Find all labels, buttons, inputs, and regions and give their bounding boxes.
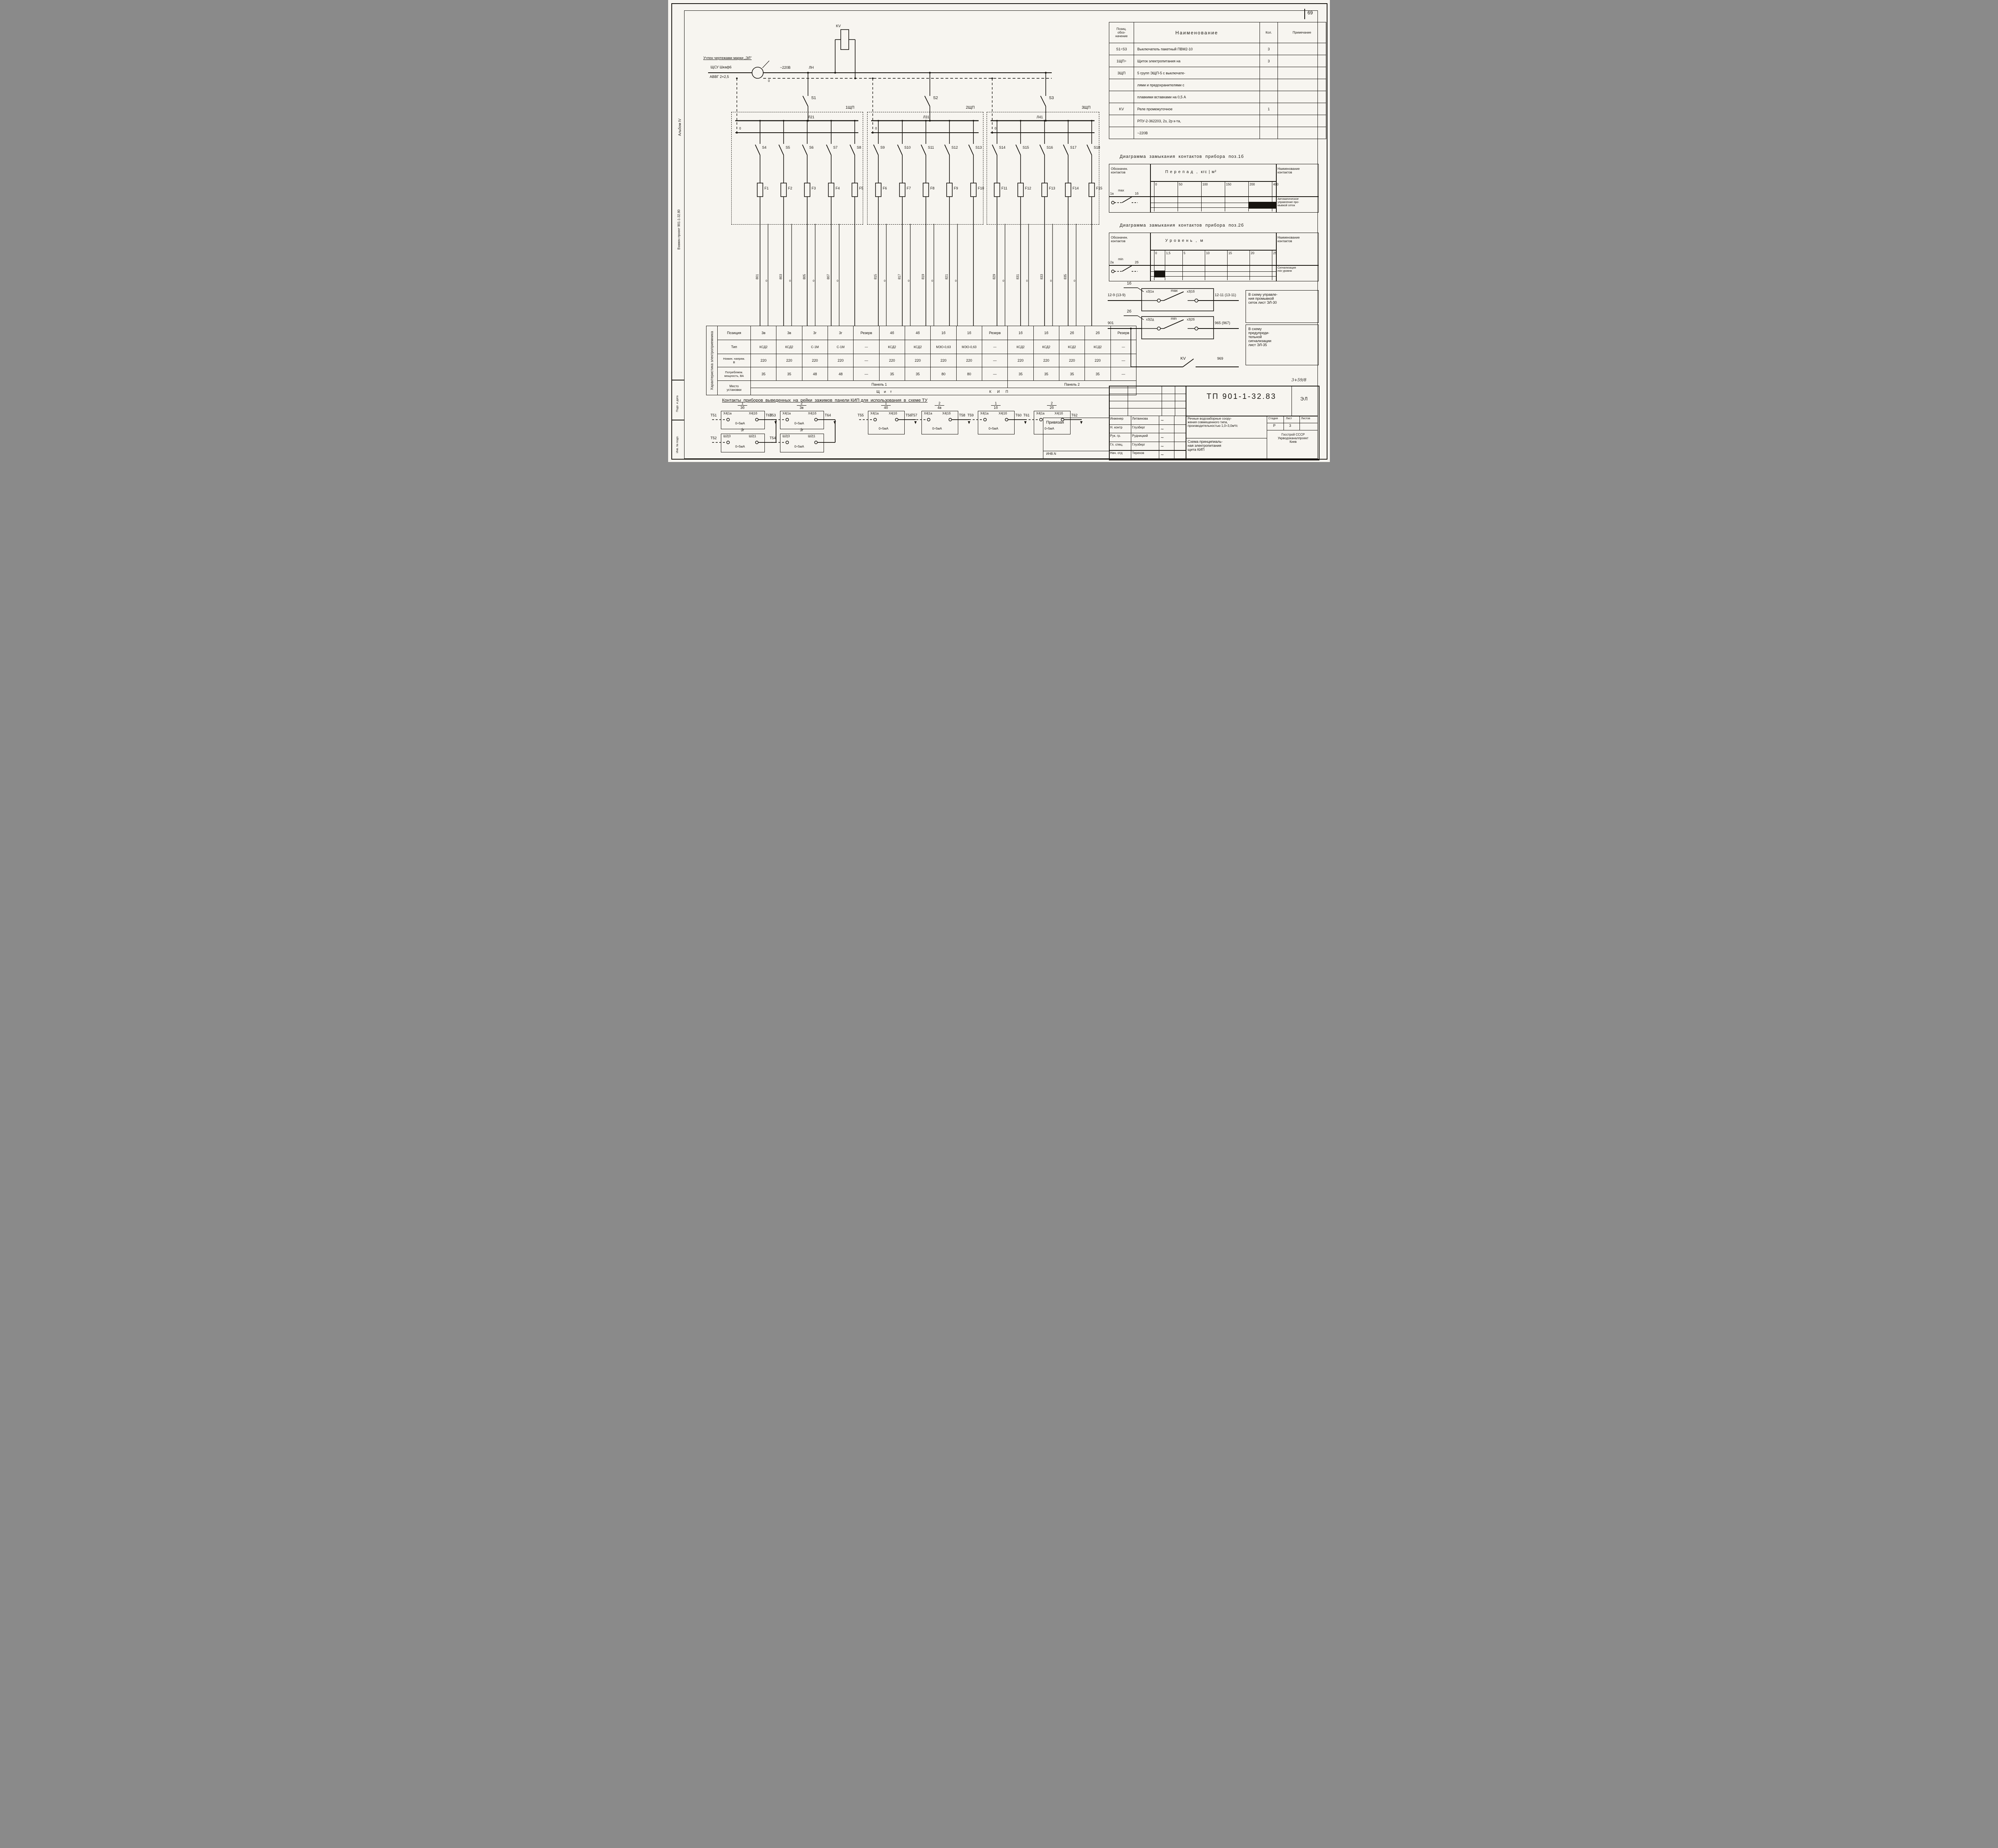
sig-col-line — [1159, 416, 1159, 459]
terminal-number: Т54 — [770, 436, 776, 440]
terminal-range: 0÷5мА — [879, 427, 888, 431]
drawing-sheet: 69 Альбом IV Взамен проект 901-1-32.80 П… — [668, 0, 1330, 462]
sig-role: Рук. гр. — [1110, 434, 1121, 438]
tb-divider — [1267, 416, 1267, 459]
diagram2-title: Диаграмма замыкания контактов прибора по… — [1120, 223, 1244, 228]
comp-col-header: Кол. — [1260, 22, 1278, 43]
load-voltage: 220 — [751, 354, 776, 367]
load-power: 35 — [751, 367, 776, 381]
branch-switch-label: S7 — [833, 145, 838, 149]
branch-switch-label: S12 — [951, 145, 958, 149]
switch-blade — [925, 96, 930, 106]
load-position: 1б — [931, 326, 956, 340]
scale-line — [1150, 250, 1276, 251]
terminal-group-pos: 3в — [797, 406, 806, 410]
junction-dot — [834, 72, 836, 74]
terminal-contact: Ш2|1 — [749, 435, 756, 438]
comp-ref: S1÷S3 — [1109, 43, 1134, 55]
terminal-group-pos: 4б — [881, 406, 891, 410]
terminal-number: Т58 — [959, 413, 965, 417]
branch-switch-label: S6 — [809, 145, 814, 149]
load-position: Резерв — [854, 326, 879, 340]
comp-note — [1278, 43, 1326, 55]
contact-purpose: Автоматическое управление про- мывкой се… — [1278, 198, 1299, 207]
terminal-number: Т57 — [911, 413, 917, 417]
marker-circle — [752, 67, 763, 78]
load-type: КСД2 — [776, 340, 802, 354]
zero-wire-label: 0 — [1050, 280, 1052, 283]
zero-wire-label: 0 — [931, 280, 933, 283]
tick-label: 20 — [1251, 252, 1254, 255]
sig-row-line — [1109, 459, 1186, 459]
comp-note — [1278, 91, 1326, 103]
fuse-label: F11 — [1001, 186, 1007, 190]
circuit-pos-label: 1б — [1127, 281, 1131, 286]
terminal-number: Т64 — [825, 413, 831, 417]
terminal-group-num: 1 — [991, 401, 1001, 406]
scale-tick — [1182, 251, 1183, 280]
load-power: 35 — [1008, 367, 1033, 381]
comp-ref: 1ЩП÷ — [1109, 55, 1134, 67]
tb-line — [1267, 430, 1318, 430]
tb-divider — [1292, 386, 1292, 416]
drawing-title: Схема принципиаль- ная электропитания щи… — [1188, 440, 1266, 452]
wire-number: 817 — [898, 269, 902, 285]
tick-label: 0 — [1155, 183, 1157, 187]
contact-track — [1150, 276, 1276, 277]
terminal-contact: Х4|1а — [870, 412, 879, 416]
diagram-axis-label: П е р е п а д , кгс | м² — [1165, 170, 1216, 174]
tick-label: 5 — [1184, 252, 1185, 255]
sig-role: Нач. отд — [1110, 452, 1122, 455]
load-location: Щ и тК И П — [751, 388, 1136, 395]
zero-wire-label: 0 — [955, 280, 957, 283]
panel-box-1ЩП — [731, 112, 863, 225]
scale-tick — [1201, 182, 1202, 211]
comp-note — [1278, 115, 1326, 127]
wire-number: 815 — [874, 269, 878, 285]
col-divider — [1150, 164, 1151, 212]
col-divider — [1276, 164, 1277, 212]
revision-grid-line — [1109, 408, 1186, 408]
terminal-contact: Х4|1а — [1036, 412, 1045, 416]
wire-number: 829 — [993, 269, 997, 285]
stage-header: Лист — [1286, 417, 1292, 420]
terminal-contact: Х4|1а — [924, 412, 932, 416]
load-power: — — [1110, 367, 1136, 381]
comp-qty — [1260, 127, 1278, 139]
main-switch-label: S3 — [1049, 96, 1054, 100]
comp-name: Щиток электропитания на — [1134, 55, 1260, 67]
tick-label: 100 — [1202, 183, 1208, 187]
signature-squiggle: ~ — [1160, 427, 1164, 432]
zero-label: 0 — [995, 127, 996, 131]
load-voltage: 220 — [905, 354, 930, 367]
terminal-group-num: 2 — [935, 401, 944, 406]
kv-wire-number: 969 — [1217, 356, 1223, 360]
row-divider — [1109, 265, 1318, 266]
tick-label: 25 — [1273, 252, 1277, 255]
relay-coil — [841, 30, 849, 50]
comp-name: РПУ-2-362203, 2з, 2р к-та, — [1134, 115, 1260, 127]
load-power: 35 — [1033, 367, 1059, 381]
note-box-el35: В схему предупреди- тельной сигнализации… — [1246, 325, 1319, 365]
fuse-label: F13 — [1049, 186, 1055, 190]
zero-wire-label: 0 — [1003, 280, 1004, 283]
circuit-right-wire: 965 (967) — [1215, 321, 1230, 325]
zero-wire-label: 0 — [789, 280, 791, 283]
components-table: Позиц. обоз- начениеНаименованиеКол.Прим… — [1109, 22, 1326, 139]
terminal-number: Т51 — [710, 413, 717, 417]
sig-role: Гл. спец. — [1110, 443, 1123, 447]
zero-wire-label: 0 — [884, 280, 886, 283]
kv-contact-label: KV — [1180, 356, 1186, 361]
fuse-label: F10 — [978, 186, 984, 190]
comp-ref: 3ЩП — [1109, 67, 1134, 79]
fuse-label: F3 — [812, 186, 816, 190]
load-voltage: — — [982, 354, 1007, 367]
project-name: Речные водозаборные соору- жения совмеще… — [1188, 417, 1266, 428]
load-voltage: 220 — [1085, 354, 1110, 367]
load-row-label: Место установки — [718, 381, 751, 395]
fuse-label: F2 — [788, 186, 792, 190]
load-power: 80 — [931, 367, 956, 381]
sig-role: Инженер — [1110, 417, 1123, 421]
sig-col-line — [1174, 416, 1174, 459]
scale-tick — [1225, 182, 1225, 211]
comp-col-header: Примечание — [1278, 22, 1326, 43]
load-position: 1б — [956, 326, 982, 340]
zero-wire-label: 0 — [766, 280, 767, 283]
doc-mark: ЭЛ — [1300, 396, 1308, 402]
wire-number: 835 — [1064, 269, 1068, 285]
load-row-label: Тип — [718, 340, 751, 354]
comp-qty — [1260, 79, 1278, 91]
closed-range-bar — [1248, 202, 1276, 209]
organization: Госстрой СССР Укрводоканалпроект Киев — [1269, 433, 1317, 444]
load-position: Резерв — [1110, 326, 1136, 340]
wire-number: 807 — [827, 269, 831, 285]
wire-number: 831 — [1017, 269, 1020, 285]
comp-ref: KV — [1109, 103, 1134, 115]
revision-grid-line — [1109, 394, 1186, 394]
terminal-number: Т55 — [858, 413, 864, 417]
load-voltage: 220 — [776, 354, 802, 367]
terminal-number: Т52 — [710, 436, 717, 440]
zero-label: 0 — [875, 127, 877, 131]
branch-switch-label: S15 — [1023, 145, 1029, 149]
terminal-group-pos: 1б — [991, 406, 1001, 410]
circuit-contact1: х3|2д — [1146, 318, 1154, 322]
panel-name: 3ЩП — [1082, 106, 1091, 110]
terminal-contact: Х4|1а — [782, 412, 791, 416]
load-type: МЭО-0,63 — [956, 340, 982, 354]
terminal-range: 0÷5мА — [932, 427, 942, 431]
diagram-col3-header: Наименование контактов — [1278, 236, 1299, 243]
load-type: МЭО-0,63 — [931, 340, 956, 354]
scale-tick — [1272, 251, 1272, 280]
comp-name: ~220В — [1134, 127, 1260, 139]
branch-switch-label: S4 — [762, 145, 766, 149]
sig-name: Литвинова — [1132, 417, 1148, 421]
fuse-label: F5 — [859, 186, 864, 190]
branch-switch-label: S13 — [975, 145, 982, 149]
panel-name: 2ЩП — [966, 106, 975, 110]
comp-qty — [1260, 91, 1278, 103]
contact-purpose: Сигнализация min уровня — [1278, 267, 1296, 273]
comp-name: лями и предохранителями с — [1134, 79, 1260, 91]
signature-squiggle: ~ — [1160, 418, 1164, 423]
row-divider — [1109, 196, 1318, 197]
load-voltage: — — [854, 354, 879, 367]
sig-col-line — [1131, 416, 1131, 459]
zero-wire-label: 0 — [813, 280, 814, 283]
stage-value: 3 — [1289, 424, 1291, 428]
load-position: 3г — [828, 326, 853, 340]
signature-squiggle: ~ — [1160, 452, 1164, 457]
load-table: Характеристика электроприемникаПозиция3в… — [706, 326, 1136, 395]
load-type: КСД2 — [1059, 340, 1085, 354]
circuit-mode: min — [1171, 317, 1177, 321]
attached-label: Привязан — [1046, 420, 1064, 425]
contact-circle — [1157, 299, 1160, 302]
branch-switch-label: S16 — [1047, 145, 1053, 149]
load-voltage: 220 — [802, 354, 828, 367]
terminal-contact: Ш2|1 — [808, 435, 815, 438]
tick-label: 150 — [1226, 183, 1231, 187]
contact-track — [1150, 271, 1276, 272]
load-rot-header: Характеристика электроприемника — [706, 326, 718, 395]
contact-circle — [1195, 327, 1198, 330]
load-voltage: 220 — [1033, 354, 1059, 367]
switch-blade — [1041, 96, 1046, 106]
load-voltage: — — [1110, 354, 1136, 367]
note-box-el30: В схему управле- ния промывкой сеток лис… — [1246, 290, 1319, 323]
circuit-contact2: х3|1б — [1187, 290, 1195, 294]
load-power: 35 — [776, 367, 802, 381]
arrow-down-icon — [914, 421, 917, 424]
sig-name: Терехов — [1132, 452, 1144, 455]
circuit-left-wire: 901 — [1108, 321, 1114, 325]
tb-line — [1186, 438, 1267, 438]
bus-label: Л31 — [923, 115, 929, 119]
load-position: 1б — [1008, 326, 1033, 340]
load-position: 3в — [751, 326, 776, 340]
bus-label: Л41 — [1037, 115, 1043, 119]
load-type: КСД2 — [1033, 340, 1059, 354]
comp-note — [1278, 67, 1326, 79]
circuit-contact2: х3|2б — [1187, 318, 1195, 322]
closure-diagram-1: Обозначен. контактовНаименование контакт… — [1109, 164, 1319, 213]
comp-qty: 3 — [1260, 43, 1278, 55]
handwritten-ref: 3+59/8 — [1292, 378, 1306, 382]
terminal-group-num: 1 — [738, 401, 747, 406]
terminal-group-pos: 3г — [738, 428, 747, 432]
terminal-group-num: 2 — [1047, 401, 1057, 406]
fuse-label: F9 — [954, 186, 958, 190]
terminal-range: 0÷5мА — [794, 445, 804, 449]
load-power: — — [982, 367, 1007, 381]
terminal-contact: Х4|1а — [980, 412, 989, 416]
diagram-axis-label: У р о в е н ь , м — [1165, 239, 1204, 243]
load-power: 35 — [1085, 367, 1110, 381]
load-row-label: Позиция — [718, 326, 751, 340]
main-switch-label: S2 — [933, 96, 938, 100]
load-type: С-1М — [802, 340, 828, 354]
fuse-label: F12 — [1025, 186, 1031, 190]
comp-ref — [1109, 127, 1134, 139]
tb-divider — [1186, 386, 1186, 459]
scale-line — [1150, 181, 1276, 182]
diagram-col1-header: Обозначен. контактов — [1111, 167, 1128, 175]
load-type: — — [982, 340, 1007, 354]
load-position: 3в — [776, 326, 802, 340]
bus-label: Л21 — [808, 115, 814, 119]
terminal-number: Т62 — [1071, 413, 1078, 417]
junction-dot — [854, 78, 856, 80]
junction-dot — [736, 78, 738, 79]
load-power: 80 — [956, 367, 982, 381]
terminal-contact: Х4|1а — [723, 412, 732, 416]
comp-name: Выключатель пакетный ПВМ2-10 — [1134, 43, 1260, 55]
branch-switch-label: S5 — [786, 145, 790, 149]
tick-label: 400 — [1273, 183, 1278, 187]
zero-label: 0 — [739, 127, 741, 131]
terminal-contact: Ш2|3 — [782, 435, 790, 438]
closed-range-bar — [1154, 271, 1165, 277]
load-type: КСД2 — [751, 340, 776, 354]
load-voltage: 220 — [1059, 354, 1085, 367]
branch-switch-label: S8 — [857, 145, 861, 149]
load-type: КСД2 — [1085, 340, 1110, 354]
junction-dot — [872, 78, 874, 79]
comp-name: плавкими вставками на 0,5 А — [1134, 91, 1260, 103]
diagram-col1-header: Обозначен. контактов — [1111, 236, 1128, 243]
load-power: 35 — [879, 367, 905, 381]
terminal-contact: Ш2|3 — [723, 435, 730, 438]
load-row-label: Потребляем. мощность, ВА — [718, 367, 751, 381]
terminal-range: 0÷5мА — [989, 427, 998, 431]
circuit-pos-label: 2б — [1127, 309, 1131, 314]
comp-col-header: Наименование — [1134, 22, 1260, 43]
load-power: 35 — [905, 367, 930, 381]
terminal-range: 0÷5мА — [794, 422, 804, 426]
load-position: 4б — [905, 326, 930, 340]
fuse-label: F8 — [930, 186, 935, 190]
zero-wire-label: 0 — [837, 280, 838, 283]
arrow-down-icon — [968, 421, 970, 424]
revision-grid-line — [1109, 401, 1186, 401]
stage-value: Р — [1273, 424, 1276, 428]
scale-tick — [1205, 251, 1205, 280]
comp-name: Реле промежуточное — [1134, 103, 1260, 115]
load-type: КСД2 — [1008, 340, 1033, 354]
sig-name: Глузберг — [1132, 443, 1145, 447]
zero-wire-label: 0 — [908, 280, 909, 283]
terminal-contact: Х4|1б — [942, 412, 951, 416]
comp-col-header: Позиц. обоз- начение — [1109, 22, 1134, 43]
wire-number: 819 — [922, 269, 925, 285]
terminal-contact: Х4|1б — [749, 412, 757, 416]
tick-label: 10 — [1206, 252, 1210, 255]
tick-label: 0 — [1155, 252, 1157, 255]
comp-name: 5 групп ЭЩП-5 с выключате- — [1134, 67, 1260, 79]
leader-line — [762, 61, 769, 68]
wire-number: 805 — [803, 269, 807, 285]
load-type: С-1М — [828, 340, 853, 354]
inv-label: ИНВ.N — [1046, 452, 1056, 456]
terminal-range: 0÷5мА — [735, 422, 745, 426]
diagram-col3-header: Наименование контактов — [1278, 167, 1299, 175]
terminal-contact: Х4|1б — [889, 412, 897, 416]
stage-header: Листов — [1301, 417, 1310, 420]
terminal-number: Т53 — [770, 413, 776, 417]
wire-number: 803 — [780, 269, 783, 285]
comp-note — [1278, 103, 1326, 115]
branch-switch-label: S17 — [1070, 145, 1077, 149]
load-power: 48 — [802, 367, 828, 381]
terminals-heading: Контакты приборов выведенных на рейки за… — [722, 398, 927, 403]
fuse-label: F6 — [883, 186, 887, 190]
load-row-label: Номин. напряж. В — [718, 354, 751, 367]
load-power: 48 — [828, 367, 853, 381]
load-panel1: Панель 1 — [751, 381, 1008, 388]
comp-ref — [1109, 79, 1134, 91]
comp-ref — [1109, 115, 1134, 127]
doc-number: ТП 901-1-32.83 — [1192, 392, 1292, 401]
branch-switch-label: S10 — [904, 145, 911, 149]
tb-divider — [1299, 416, 1300, 430]
terminal-number: Т60 — [1015, 413, 1022, 417]
load-voltage: 220 — [828, 354, 853, 367]
circuit-mode: max — [1171, 289, 1178, 293]
terminal-number: Т61 — [1023, 413, 1030, 417]
comp-qty: 1 — [1260, 103, 1278, 115]
circuit-contact1: х3|1а — [1146, 290, 1154, 294]
terminal-group-pos: 3г — [797, 428, 806, 432]
panel-box-3ЩП — [987, 112, 1099, 225]
load-position: 4б — [879, 326, 905, 340]
signature-squiggle: ~ — [1160, 444, 1164, 449]
comp-qty — [1260, 67, 1278, 79]
zero-wire-label: 0 — [1026, 280, 1028, 283]
revision-grid-line — [1175, 386, 1175, 416]
arrow-down-icon — [1024, 421, 1027, 424]
scale-tick — [1178, 182, 1178, 211]
comp-note — [1278, 79, 1326, 91]
fuse-label: F14 — [1073, 186, 1079, 190]
sig-name: Рудницкий — [1132, 434, 1148, 438]
tb-line — [1043, 451, 1109, 451]
revision-grid-line — [1128, 386, 1128, 416]
arrow-down-icon — [834, 421, 836, 424]
branch-switch-label: S11 — [928, 145, 934, 149]
zero-wire-label: 0 — [1074, 280, 1075, 283]
comp-note — [1278, 55, 1326, 67]
arrow-down-icon — [774, 421, 777, 424]
tb-line — [1186, 416, 1318, 416]
col-divider — [1276, 233, 1277, 281]
scale-tick — [1165, 251, 1165, 280]
load-voltage: 220 — [931, 354, 956, 367]
revision-grid-line — [1162, 386, 1162, 416]
sig-role: Н. контр — [1110, 426, 1122, 430]
contact-blade — [1164, 292, 1184, 301]
signature-squiggle: ~ — [1160, 435, 1164, 440]
terminal-contact: Х4|1б — [808, 412, 816, 416]
contact-circle — [1157, 327, 1160, 330]
load-position: 2б — [1059, 326, 1085, 340]
